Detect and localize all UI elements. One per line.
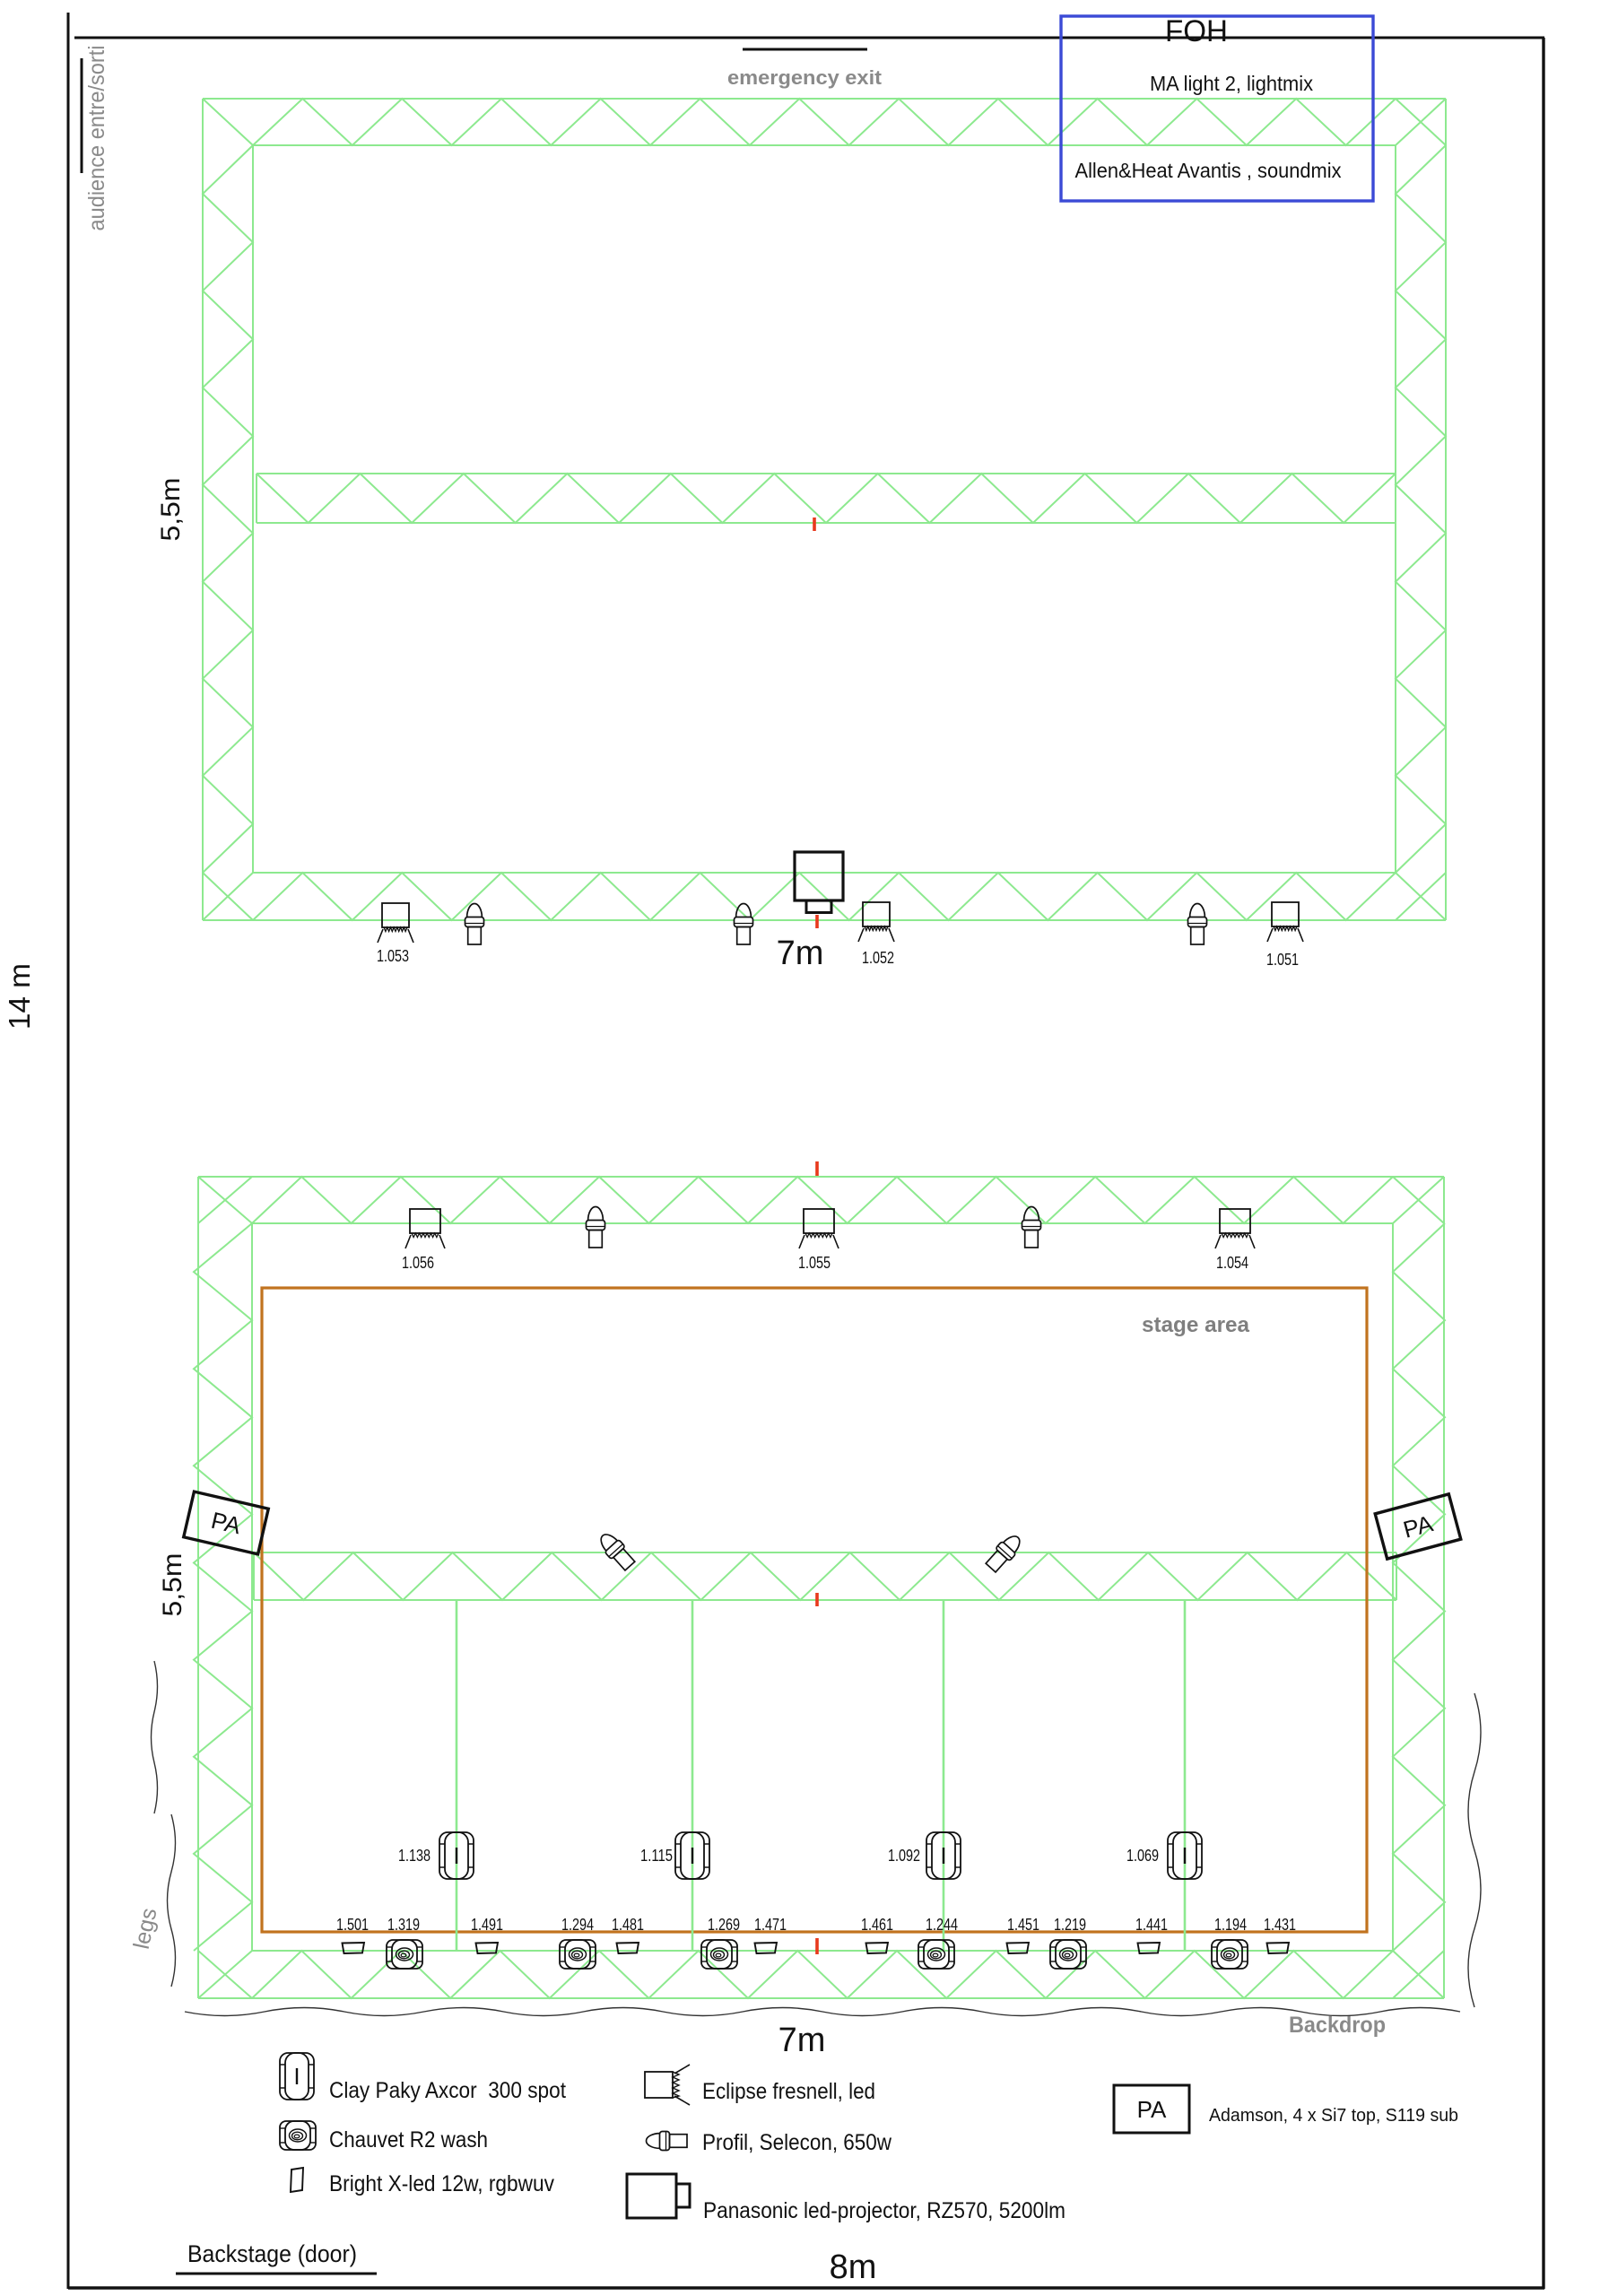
svg-text:1.054: 1.054	[1216, 1253, 1248, 1272]
svg-text:1.269: 1.269	[708, 1915, 740, 1934]
svg-text:emergency exit: emergency exit	[727, 66, 883, 89]
svg-text:Bright X-led 12w, rgbwuv: Bright X-led 12w, rgbwuv	[329, 2171, 554, 2196]
svg-text:5,5m: 5,5m	[158, 1553, 187, 1617]
svg-text:Allen&Heat Avantis , soundmix: Allen&Heat Avantis , soundmix	[1075, 159, 1342, 182]
svg-text:Panasonic led-projector, RZ570: Panasonic led-projector, RZ570, 5200lm	[703, 2198, 1065, 2223]
svg-text:1.451: 1.451	[1007, 1915, 1039, 1934]
svg-text:5,5m: 5,5m	[156, 478, 186, 542]
svg-text:1.115: 1.115	[640, 1846, 673, 1865]
svg-text:1.052: 1.052	[862, 948, 894, 967]
svg-text:1.431: 1.431	[1264, 1915, 1296, 1934]
svg-text:audience entre/sorti: audience entre/sorti	[84, 46, 109, 231]
svg-text:1.491: 1.491	[471, 1915, 503, 1934]
svg-text:1.441: 1.441	[1135, 1915, 1168, 1934]
svg-text:Clay Paky Axcor 300 spot: Clay Paky Axcor 300 spot	[329, 2078, 566, 2103]
svg-text:FOH: FOH	[1165, 14, 1228, 48]
svg-text:1.069: 1.069	[1126, 1846, 1159, 1865]
svg-text:1.481: 1.481	[612, 1915, 644, 1934]
svg-text:stage area: stage area	[1142, 1313, 1250, 1337]
svg-text:MA light 2, lightmix: MA light 2, lightmix	[1150, 72, 1313, 95]
svg-text:Backdrop: Backdrop	[1289, 2013, 1386, 2038]
svg-text:Eclipse fresnell, led: Eclipse fresnell, led	[702, 2079, 875, 2104]
svg-text:PA: PA	[1137, 2096, 1167, 2123]
svg-text:1.319: 1.319	[387, 1915, 420, 1934]
svg-text:1.244: 1.244	[926, 1915, 958, 1934]
svg-text:Chauvet R2 wash: Chauvet R2 wash	[329, 2127, 488, 2152]
svg-text:14 m: 14 m	[3, 963, 36, 1030]
svg-text:1.471: 1.471	[754, 1915, 787, 1934]
svg-text:7m: 7m	[778, 2022, 826, 2059]
svg-text:8m: 8m	[830, 2248, 877, 2286]
svg-text:1.051: 1.051	[1266, 950, 1299, 969]
svg-text:1.055: 1.055	[798, 1253, 831, 1272]
svg-text:1.138: 1.138	[398, 1846, 431, 1865]
svg-text:Backstage (door): Backstage (door)	[187, 2240, 357, 2267]
svg-text:1.056: 1.056	[402, 1253, 434, 1272]
svg-text:Adamson, 4 x Si7 top, S119 sub: Adamson, 4 x Si7 top, S119 sub	[1209, 2106, 1458, 2126]
svg-text:7m: 7m	[777, 935, 824, 972]
svg-text:1.219: 1.219	[1054, 1915, 1086, 1934]
svg-text:1.092: 1.092	[888, 1846, 920, 1865]
svg-text:1.501: 1.501	[336, 1915, 369, 1934]
svg-text:1.053: 1.053	[377, 946, 409, 965]
svg-text:1.461: 1.461	[861, 1915, 893, 1934]
svg-text:1.294: 1.294	[561, 1915, 594, 1934]
svg-text:Profil, Selecon, 650w: Profil, Selecon, 650w	[702, 2130, 892, 2155]
svg-text:1.194: 1.194	[1214, 1915, 1247, 1934]
